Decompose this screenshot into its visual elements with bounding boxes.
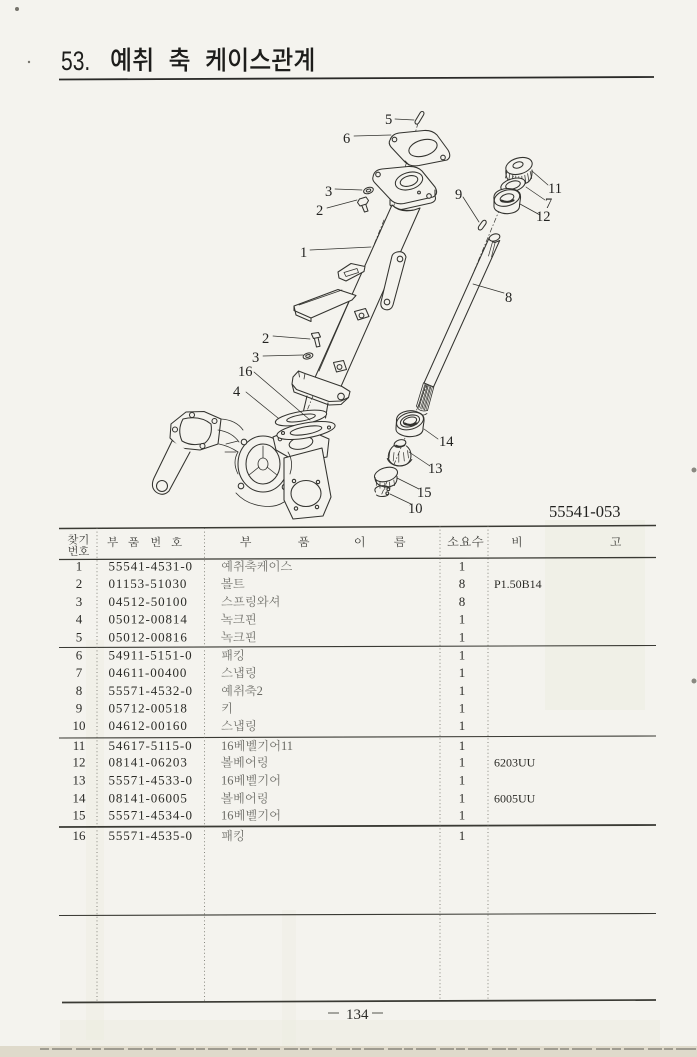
svg-text:04611-00400: 04611-00400: [109, 665, 188, 680]
svg-text:55541-053: 55541-053: [549, 502, 621, 521]
svg-text:04512-50100: 04512-50100: [109, 594, 188, 609]
svg-text:16: 16: [221, 809, 234, 823]
svg-text:8: 8: [459, 594, 466, 609]
svg-text:3: 3: [76, 594, 83, 609]
svg-text:1: 1: [459, 665, 466, 680]
svg-text:53.: 53.: [61, 47, 90, 77]
svg-text:1: 1: [459, 738, 466, 753]
svg-text:3: 3: [252, 350, 259, 366]
svg-text:01153-51030: 01153-51030: [109, 576, 188, 591]
svg-text:08141-06203: 08141-06203: [109, 755, 188, 770]
svg-text:1: 1: [300, 245, 307, 261]
svg-text:9: 9: [455, 187, 462, 203]
svg-text:6203UU: 6203UU: [494, 756, 536, 770]
svg-text:4: 4: [76, 612, 83, 627]
svg-text:05012-00816: 05012-00816: [109, 629, 188, 644]
svg-text:15: 15: [73, 808, 86, 823]
svg-text:8: 8: [505, 290, 512, 306]
svg-text:6: 6: [76, 648, 83, 663]
svg-text:55571-4533-0: 55571-4533-0: [109, 773, 193, 788]
svg-text:10: 10: [408, 501, 423, 517]
svg-text:04612-00160: 04612-00160: [109, 718, 188, 733]
svg-text:1: 1: [459, 808, 466, 823]
svg-text:4: 4: [233, 384, 241, 400]
svg-text:8: 8: [76, 683, 83, 698]
svg-text:7: 7: [76, 665, 83, 680]
svg-text:14: 14: [73, 791, 87, 806]
svg-text:1: 1: [459, 828, 466, 843]
svg-text:2: 2: [76, 576, 83, 591]
svg-text:9: 9: [76, 701, 83, 716]
svg-text:16: 16: [221, 774, 234, 788]
svg-text:55571-4532-0: 55571-4532-0: [109, 683, 193, 698]
svg-text:8: 8: [459, 576, 466, 591]
svg-text:5: 5: [385, 112, 392, 128]
svg-text:54617-5115-0: 54617-5115-0: [109, 738, 193, 753]
svg-text:14: 14: [439, 434, 454, 450]
svg-text:1: 1: [459, 791, 466, 806]
svg-text:11: 11: [73, 738, 86, 753]
svg-text:11: 11: [548, 181, 562, 197]
svg-text:5: 5: [76, 629, 83, 644]
svg-text:1: 1: [459, 683, 466, 698]
svg-text:16: 16: [221, 739, 234, 753]
svg-text:55571-4534-0: 55571-4534-0: [109, 808, 193, 823]
svg-text:P1.50B14: P1.50B14: [494, 577, 542, 591]
svg-text:1: 1: [459, 718, 466, 733]
svg-text:2: 2: [262, 331, 269, 347]
svg-text:55571-4535-0: 55571-4535-0: [109, 828, 193, 843]
svg-text:54911-5151-0: 54911-5151-0: [109, 648, 193, 663]
svg-text:08141-06005: 08141-06005: [109, 791, 188, 806]
svg-text:1: 1: [459, 612, 466, 627]
svg-text:13: 13: [73, 773, 86, 788]
svg-text:3: 3: [325, 184, 332, 200]
svg-text:6: 6: [343, 131, 350, 147]
svg-text:2: 2: [257, 684, 263, 698]
svg-text:1: 1: [459, 629, 466, 644]
svg-text:11: 11: [281, 739, 293, 753]
svg-text:134: 134: [346, 1007, 369, 1023]
svg-text:10: 10: [73, 718, 86, 733]
svg-text:1: 1: [459, 648, 466, 663]
svg-text:1: 1: [459, 755, 466, 770]
svg-text:1: 1: [459, 701, 466, 716]
svg-text:16: 16: [238, 364, 253, 380]
svg-text:12: 12: [536, 209, 551, 225]
svg-text:6005UU: 6005UU: [494, 792, 536, 806]
svg-text:1: 1: [459, 559, 466, 574]
svg-text:15: 15: [417, 485, 432, 501]
svg-text:16: 16: [73, 828, 87, 843]
svg-text:1: 1: [76, 559, 83, 574]
svg-text:05012-00814: 05012-00814: [109, 612, 188, 627]
svg-text:13: 13: [428, 461, 443, 477]
svg-text:12: 12: [73, 755, 86, 770]
svg-text:55541-4531-0: 55541-4531-0: [109, 559, 193, 574]
svg-text:05712-00518: 05712-00518: [109, 701, 188, 716]
svg-text:1: 1: [459, 773, 466, 788]
svg-text:2: 2: [316, 203, 323, 219]
